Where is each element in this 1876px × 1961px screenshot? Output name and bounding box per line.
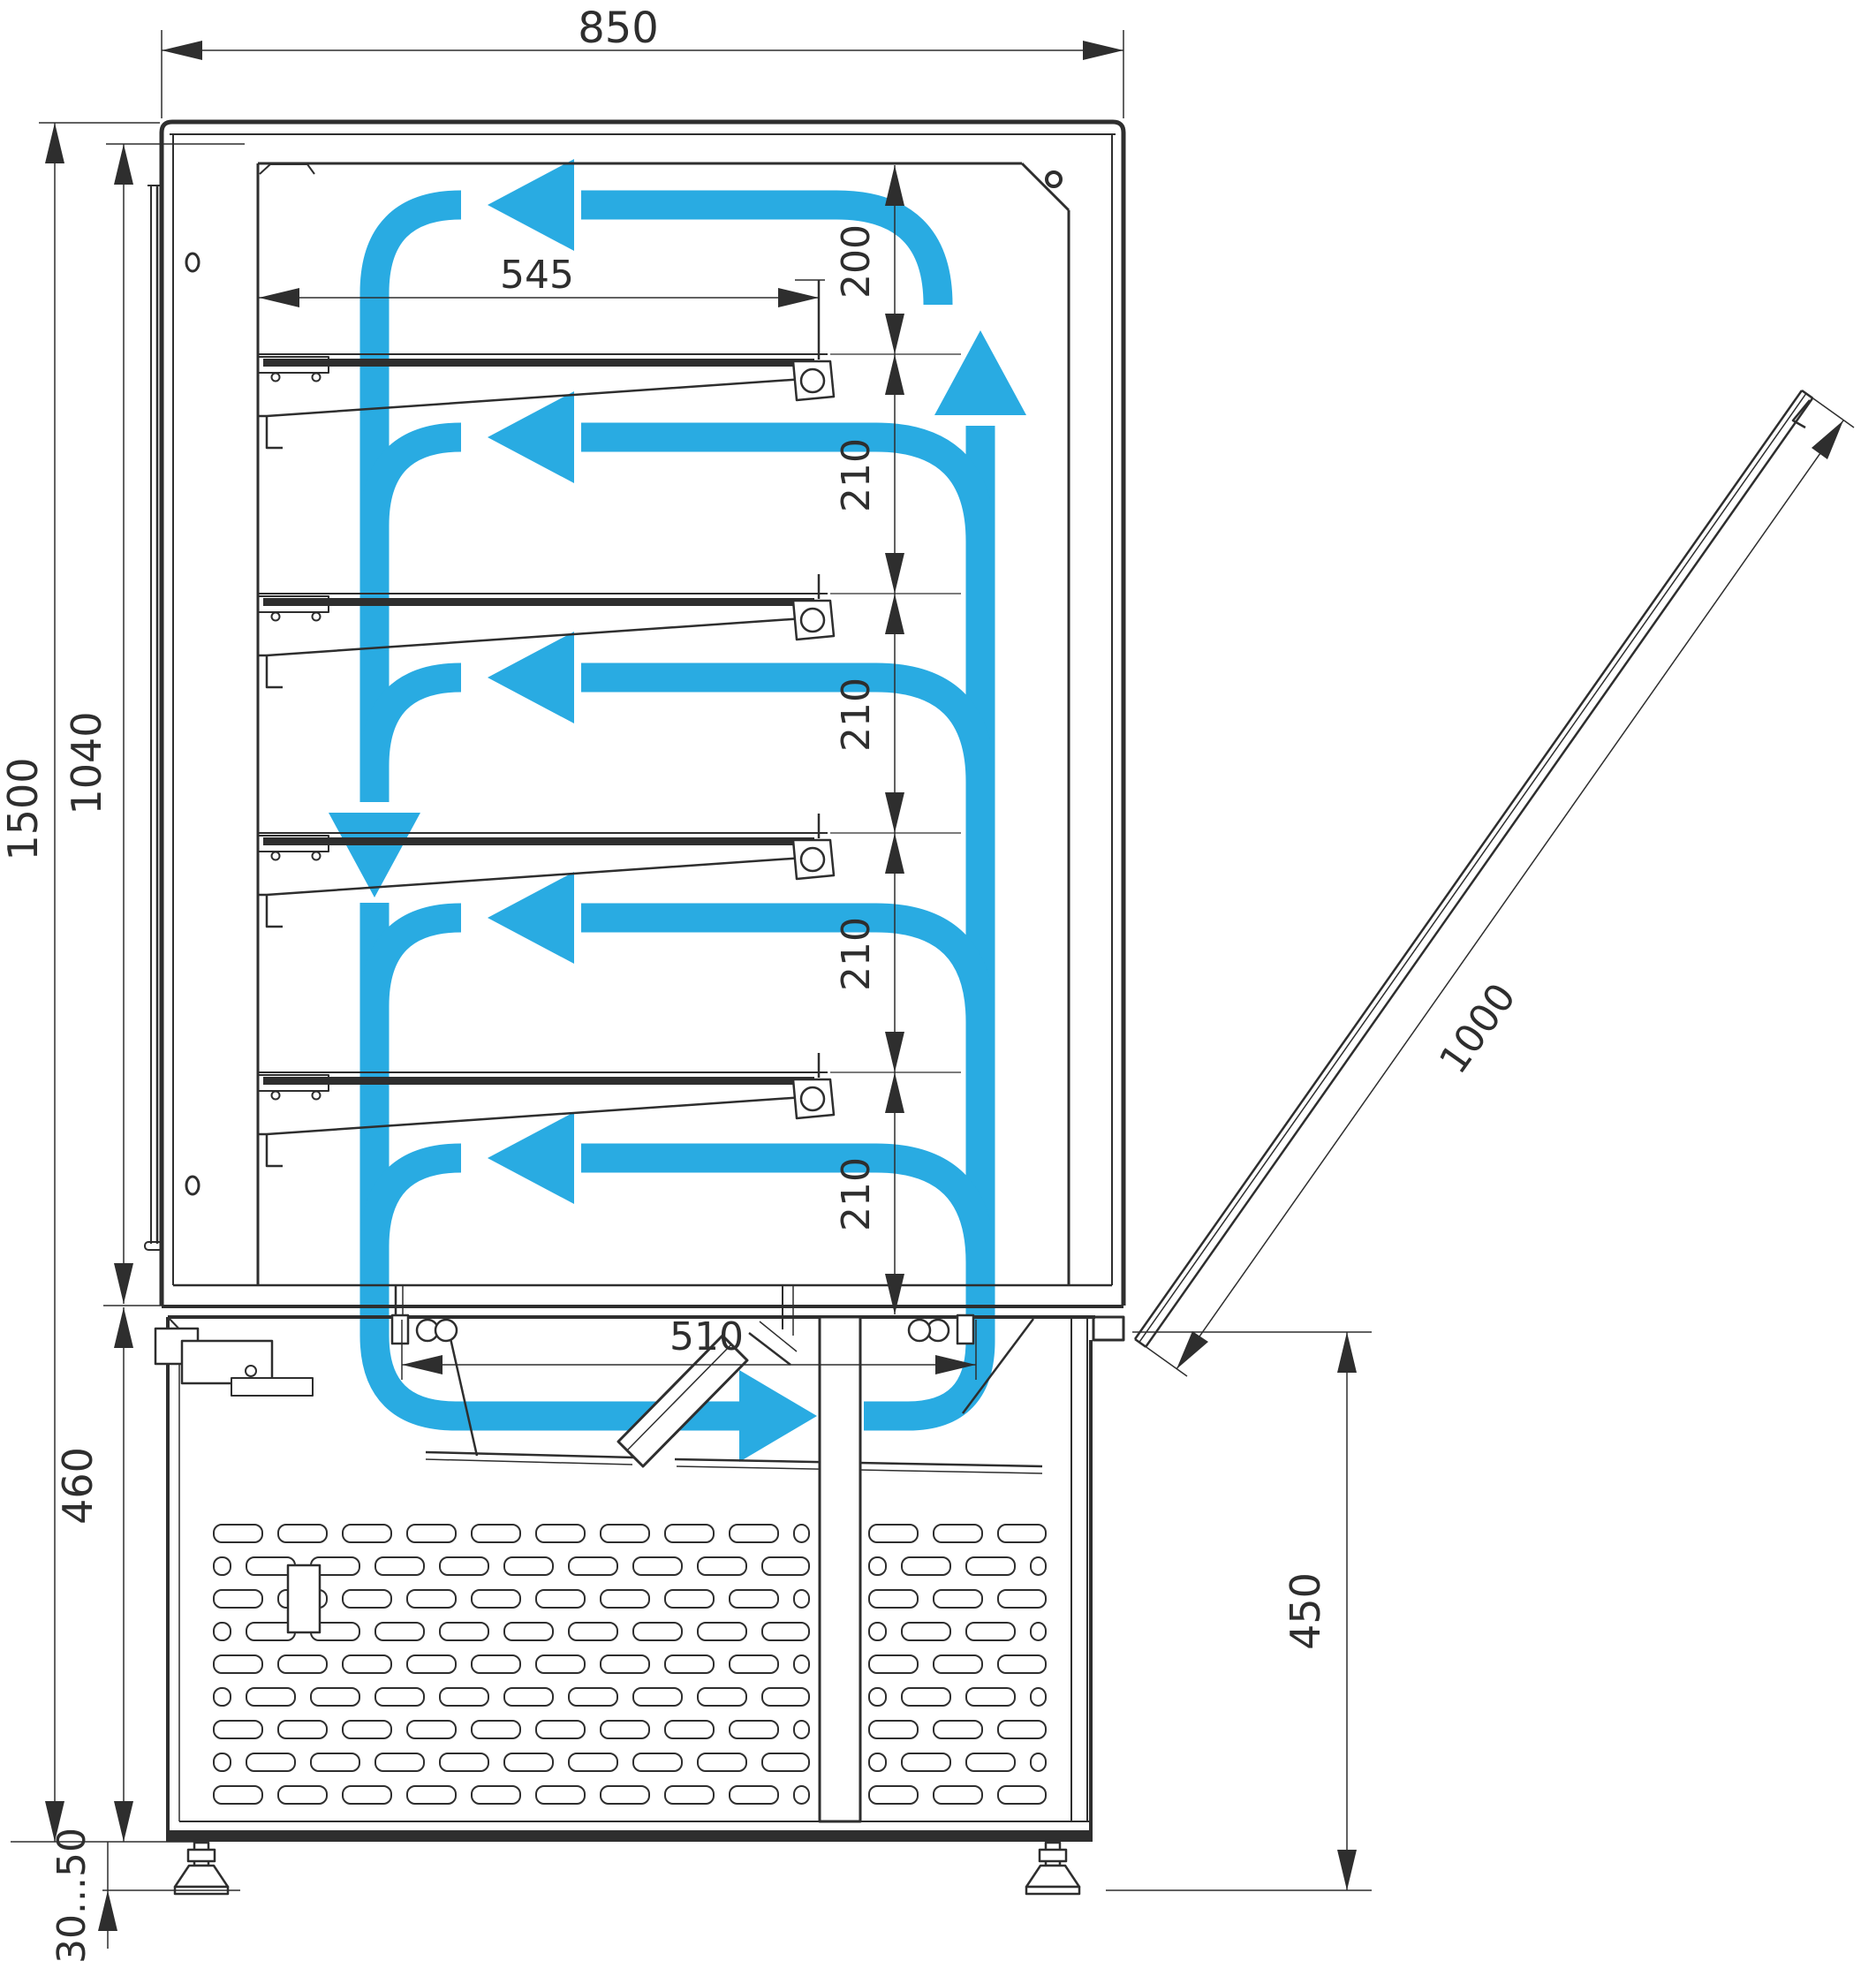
ventilation-grille: [214, 1525, 1046, 1804]
dim-shelf-spacing-2: 210: [834, 678, 879, 752]
adjustable-foot: [1026, 1843, 1079, 1894]
screw-icon: [1047, 172, 1061, 186]
grille-bracket: [288, 1565, 320, 1632]
dim-base-height-right: 450: [1282, 1572, 1329, 1650]
dim-overall-width: 850: [578, 4, 659, 53]
support-strut: [820, 1317, 860, 1821]
dim-shelf-spacing-1: 210: [834, 438, 879, 512]
adjustable-feet: [175, 1843, 1079, 1894]
display-case-cross-section: 850 545 200 210 210 210 210 510 1500 104…: [0, 0, 1876, 1961]
dim-bottom-opening: 510: [669, 1314, 744, 1359]
dim-top-clearance: 200: [834, 224, 879, 299]
dim-overall-height: 1500: [0, 757, 47, 860]
screw-icon: [186, 1177, 199, 1194]
dim-display-height: 1040: [63, 711, 110, 814]
dim-foot-adjustment: 30...50: [49, 1828, 95, 1961]
dim-base-height: 460: [54, 1447, 102, 1525]
dim-shelf-length: 545: [500, 253, 574, 298]
dim-shelf-spacing-4: 210: [834, 1157, 879, 1231]
drawing-canvas: 850 545 200 210 210 210 210 510 1500 104…: [0, 0, 1876, 1961]
screw-icon: [186, 254, 199, 271]
dim-door-length: 1000: [1431, 975, 1524, 1082]
rear-panel: [145, 185, 199, 1250]
dim-shelf-spacing-3: 210: [834, 917, 879, 991]
front-glass-door-open: [1135, 390, 1812, 1347]
deck-clamp-right: [909, 1315, 973, 1344]
adjustable-foot: [175, 1843, 228, 1894]
